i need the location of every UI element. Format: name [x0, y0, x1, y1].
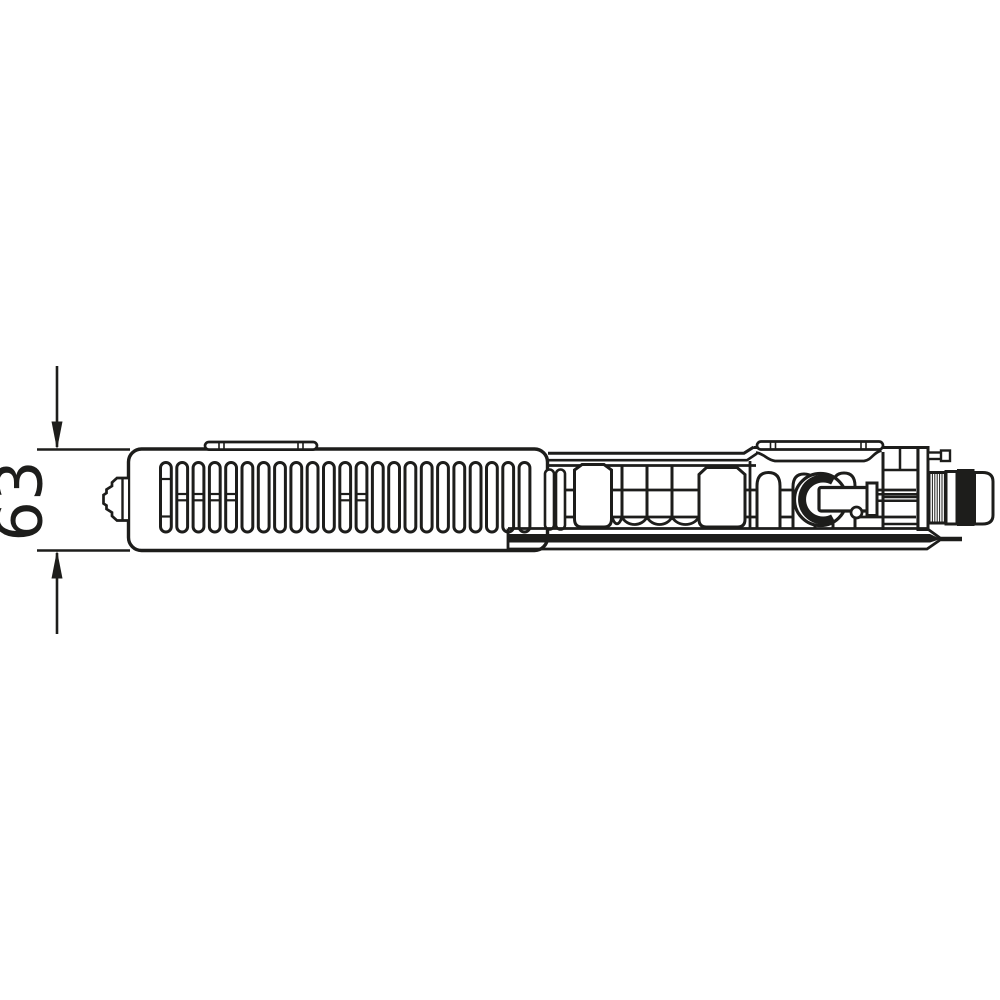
fin-loop-narrow-1: [545, 470, 554, 530]
depth-dimension-label: 63: [0, 460, 58, 541]
grille-slat: [209, 463, 220, 533]
slat-grille: [161, 463, 530, 533]
valve-cap-black: [957, 469, 975, 526]
grille-slat: [372, 463, 383, 533]
thread-hatch: [930, 474, 944, 522]
valve-cap-end: [975, 473, 994, 525]
grille-slat: [242, 463, 253, 533]
tail-connection: [918, 448, 993, 530]
rear-convector: [545, 442, 918, 531]
collar-ring: [946, 472, 957, 525]
drain-plug: [851, 507, 862, 518]
drawing-canvas: 63: [0, 0, 1000, 1000]
valve-pipe: [819, 488, 869, 512]
grille-slat: [307, 463, 318, 533]
front-panel: [104, 442, 548, 551]
arrowhead-top: [52, 422, 63, 450]
grille-slat: [519, 463, 530, 533]
top-rail-outer: [548, 447, 754, 453]
grille-slat: [389, 463, 400, 533]
fin-loop-narrow-2: [556, 470, 565, 530]
grille-slat: [275, 463, 286, 533]
fin-trapezoid-1: [575, 465, 612, 528]
grille-slat: [454, 463, 465, 533]
grille-slat: [487, 463, 498, 533]
front-panel-outline: [129, 449, 548, 551]
housing-pocket-line: [756, 451, 882, 462]
fin-trapezoid-2: [699, 468, 745, 528]
grille-slat: [193, 463, 204, 533]
grille-slat: [324, 463, 335, 533]
grille-slat: [438, 463, 449, 533]
grille-slat: [421, 463, 432, 533]
bracket-tab-left: [205, 442, 317, 450]
radiator-technical-drawing: 63: [0, 0, 1000, 1000]
fin-cell-verticals: [622, 466, 672, 517]
vent-tab-cap: [941, 451, 950, 462]
grille-slat: [226, 463, 237, 533]
valve-flange: [867, 483, 877, 516]
fin-loop-a: [757, 473, 780, 530]
bottom-plate: [508, 529, 962, 550]
grille-slat: [291, 463, 302, 533]
grille-slat: [161, 463, 172, 533]
blind-plug: [104, 478, 129, 521]
arrowhead-bottom: [52, 551, 63, 579]
grille-slat: [356, 463, 367, 533]
bottom-plate-solid: [508, 534, 941, 543]
grille-slat: [258, 463, 269, 533]
grille-slat: [177, 463, 188, 533]
grille-slat: [405, 463, 416, 533]
grille-slat: [340, 463, 351, 533]
subpanel-lines: [885, 448, 917, 524]
grille-slat: [503, 463, 514, 533]
grille-slat: [470, 463, 481, 533]
